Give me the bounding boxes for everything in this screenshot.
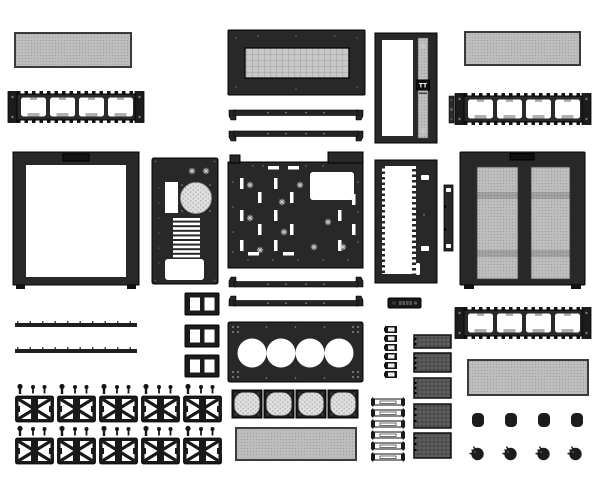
clip-unit — [100, 426, 138, 464]
thumbscrew-mark-icon — [420, 43, 426, 49]
io-port-bar — [388, 298, 421, 308]
top-panel — [228, 30, 365, 95]
small-clip — [384, 362, 397, 369]
mesh-vent-strip — [477, 167, 518, 279]
square-fan-filter — [296, 390, 326, 418]
clip-unit — [142, 384, 180, 422]
rubber-foot — [571, 413, 583, 427]
thumbscrew-mark-icon — [189, 168, 195, 174]
thumbscrew-mark-icon — [420, 128, 426, 134]
two-hole-bracket — [185, 325, 219, 347]
slide-rail — [371, 409, 405, 418]
clip-unit — [184, 426, 222, 464]
two-hole-brackets — [185, 293, 219, 377]
support-rail — [229, 131, 363, 141]
mesh-tray-cover — [414, 353, 451, 372]
support-rail — [229, 277, 363, 287]
rubber-foot — [472, 413, 484, 427]
slide-rail — [371, 431, 405, 440]
parts-diagram: TT — [0, 0, 600, 500]
panel-handle — [63, 154, 89, 161]
thumbscrew — [568, 447, 582, 461]
thumbscrew — [503, 447, 517, 461]
thumbscrew — [470, 447, 484, 461]
clip-unit-grid — [16, 384, 222, 464]
slide-rails — [371, 398, 405, 462]
slide-rail — [371, 453, 405, 462]
clip-unit — [142, 426, 180, 464]
fan-opening — [325, 339, 354, 368]
cpu-cutout — [310, 172, 354, 200]
small-clip — [384, 371, 397, 378]
thumbscrew-mark-icon — [203, 168, 209, 174]
fan-opening — [267, 339, 296, 368]
dust-filter-top-right — [465, 32, 580, 65]
rubber-foot — [505, 413, 517, 427]
fan-opening — [296, 339, 325, 368]
square-fan-filters — [232, 390, 358, 418]
support-rail — [229, 296, 363, 306]
front-frame-window — [382, 166, 412, 274]
two-hole-bracket — [185, 355, 219, 377]
panel-foot — [127, 285, 136, 289]
dust-filter-bottom-right — [468, 360, 588, 395]
side-strip-small — [449, 96, 454, 123]
glass-side-panel — [13, 152, 139, 289]
motherboard-tray — [228, 152, 363, 268]
fan-bracket-top-right — [455, 94, 591, 125]
panel-foot — [571, 285, 581, 289]
mesh-tray-cover — [414, 378, 451, 398]
panel-handle — [510, 154, 534, 161]
fan-mounting-plate — [228, 322, 363, 382]
thumbscrews — [470, 447, 582, 461]
mesh-tray-covers — [414, 335, 451, 458]
rubber-feet — [472, 413, 583, 427]
fan-bracket-bottom-right — [455, 308, 591, 339]
clip-unit — [16, 426, 54, 464]
flat-strip — [15, 349, 137, 353]
dust-filter-bottom-center — [236, 428, 356, 460]
square-fan-filter — [232, 390, 262, 418]
side-strip-long — [444, 185, 453, 251]
frame-slot — [416, 263, 420, 275]
slide-rail — [371, 398, 405, 407]
mesh-tray-cover — [414, 404, 451, 428]
flat-strips — [15, 322, 137, 353]
support-rail — [229, 110, 363, 120]
small-clips — [384, 326, 397, 378]
small-clip — [384, 335, 397, 342]
square-fan-filter — [328, 390, 358, 418]
top-panel-vent — [245, 48, 349, 78]
rubber-foot — [538, 413, 550, 427]
tray-tab — [230, 155, 240, 163]
mesh-tray-cover — [414, 433, 451, 458]
psu-cutout — [165, 259, 204, 280]
clip-unit — [184, 384, 222, 422]
mesh-side-panel — [460, 152, 585, 289]
pci-slot-covers — [173, 218, 200, 257]
panel-foot — [16, 285, 25, 289]
front-frame — [375, 160, 437, 283]
brand-wordmark — [419, 93, 427, 95]
rear-fan-vent — [181, 183, 212, 214]
thumbscrew — [536, 447, 550, 461]
small-clip — [384, 353, 397, 360]
frame-slot — [421, 175, 429, 180]
frame-slot — [421, 246, 429, 251]
glass-window — [26, 165, 126, 277]
slide-rail — [371, 420, 405, 429]
strip-slot — [446, 244, 451, 248]
front-panel-window — [382, 40, 413, 136]
small-clip — [384, 326, 397, 333]
tray-tab — [328, 152, 363, 163]
parts-diagram-canvas: TT — [0, 0, 600, 500]
rear-panel — [152, 158, 218, 284]
io-port — [392, 302, 396, 305]
io-shield-cutout — [165, 182, 178, 213]
slide-rail — [371, 442, 405, 451]
small-clip — [384, 344, 397, 351]
strip-slot — [446, 188, 451, 192]
mesh-vent-strip — [531, 167, 570, 279]
clip-unit — [58, 426, 96, 464]
two-hole-bracket — [185, 293, 219, 315]
clip-unit — [16, 384, 54, 422]
brand-logo-text: TT — [419, 83, 428, 90]
fan-bracket-top-left — [8, 92, 144, 123]
flat-strip — [15, 323, 137, 327]
fan-opening — [238, 339, 267, 368]
square-fan-filter — [264, 390, 294, 418]
panel-foot — [464, 285, 474, 289]
clip-unit — [100, 384, 138, 422]
front-panel: TT — [375, 33, 437, 143]
mesh-tray-cover — [414, 335, 451, 348]
dust-filter-top-left — [15, 33, 131, 67]
clip-unit — [58, 384, 96, 422]
